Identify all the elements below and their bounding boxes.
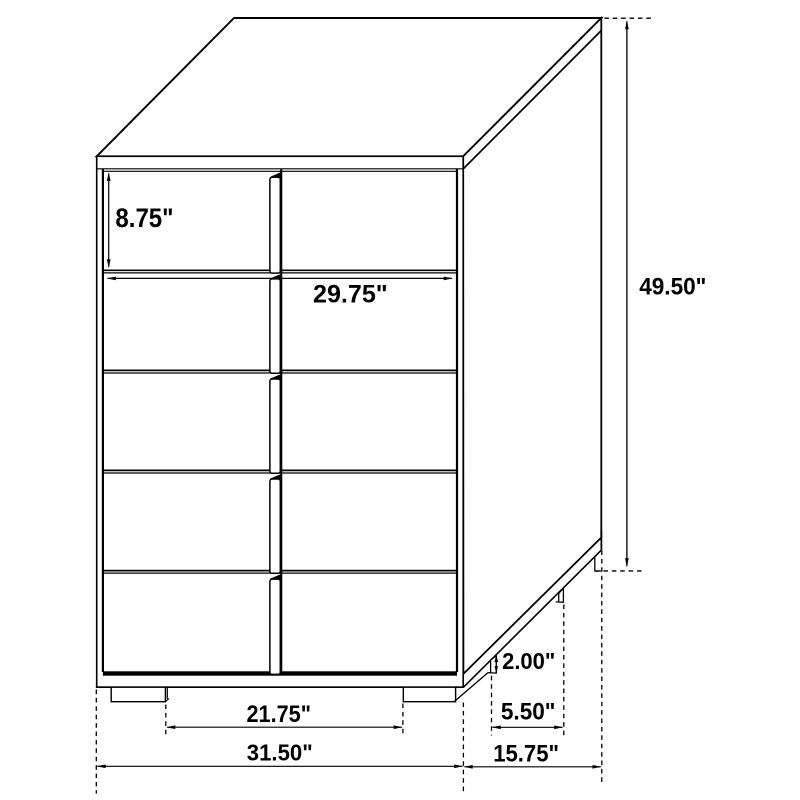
svg-text:5.50": 5.50" <box>501 700 556 726</box>
svg-text:31.50": 31.50" <box>247 739 313 765</box>
svg-text:21.75": 21.75" <box>247 701 312 728</box>
svg-text:29.75": 29.75" <box>313 281 388 308</box>
svg-text:8.75": 8.75" <box>115 203 173 233</box>
svg-text:49.50": 49.50" <box>639 274 706 301</box>
svg-text:2.00": 2.00" <box>502 648 555 674</box>
svg-text:15.75": 15.75" <box>493 741 559 768</box>
